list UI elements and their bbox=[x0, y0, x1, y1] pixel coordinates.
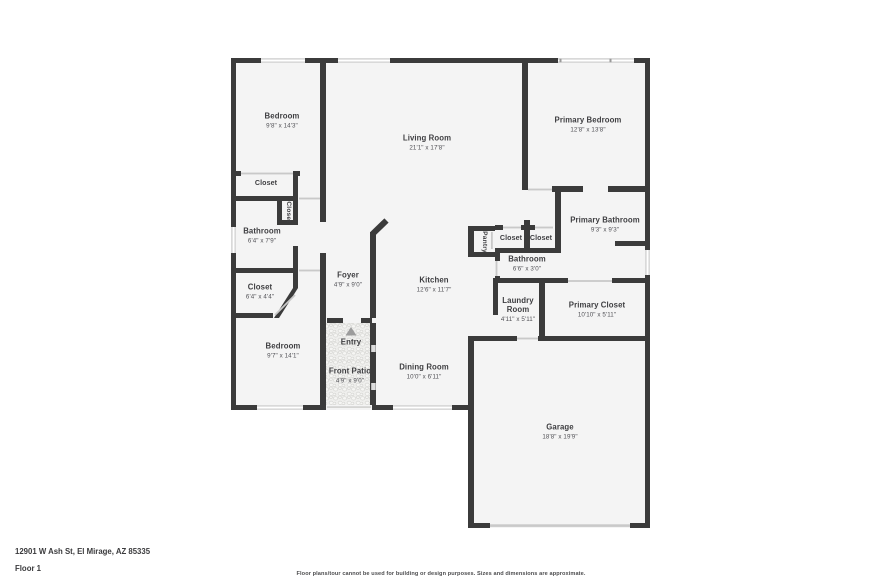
room-dims: 10'0" x 6'11" bbox=[399, 374, 449, 381]
room-name: Foyer bbox=[334, 271, 362, 280]
room-label-closet-b: Closet bbox=[530, 234, 552, 242]
room-dims: 12'6" x 11'7" bbox=[417, 287, 452, 294]
room-dims: 6'4" x 7'9" bbox=[243, 238, 281, 245]
room-label-bedroom-closet: Closet bbox=[255, 179, 277, 187]
floorplan-drawing bbox=[0, 0, 882, 588]
room-label-pantry: Pantry bbox=[480, 231, 488, 253]
room-dims: 12'8" x 13'8" bbox=[555, 127, 622, 134]
room-dims: 18'8" x 19'9" bbox=[542, 434, 577, 441]
room-label-garage: Garage 18'8" x 19'9" bbox=[542, 423, 577, 440]
room-label-laundry-room: Laundry Room 4'11" x 5'11" bbox=[492, 297, 544, 323]
room-label-primary-bedroom: Primary Bedroom 12'8" x 13'8" bbox=[555, 116, 622, 133]
room-label-living-room: Living Room 21'1" x 17'8" bbox=[403, 134, 451, 151]
room-name: Garage bbox=[542, 423, 577, 432]
room-name: Entry bbox=[341, 339, 361, 348]
room-name: Closet bbox=[246, 283, 274, 292]
room-label-bedroom-front: Bedroom 9'8" x 14'3" bbox=[265, 112, 300, 129]
room-dims: 6'4" x 4'4" bbox=[246, 294, 274, 301]
room-label-front-patio: Front Patio 4'9" x 9'0" bbox=[329, 367, 371, 384]
room-name: Kitchen bbox=[417, 276, 452, 285]
room-name: Closet bbox=[284, 201, 292, 222]
room-name: Closet bbox=[530, 234, 552, 242]
room-name: Bathroom bbox=[243, 227, 281, 236]
garage-door-line bbox=[490, 524, 630, 527]
room-name: Bedroom bbox=[265, 112, 300, 121]
room-dims: 9'7" x 14'1" bbox=[266, 353, 301, 360]
room-label-hall-closet: Closet 6'4" x 4'4" bbox=[246, 283, 274, 300]
room-dims: 4'11" x 5'11" bbox=[492, 316, 544, 323]
room-name: Bathroom bbox=[508, 255, 546, 264]
room-label-foyer: Foyer 4'9" x 9'0" bbox=[334, 271, 362, 288]
room-dims: 4'9" x 9'0" bbox=[329, 378, 371, 385]
room-label-dining-room: Dining Room 10'0" x 6'11" bbox=[399, 363, 449, 380]
room-label-side-closet: Closet bbox=[284, 201, 292, 222]
property-address: 12901 W Ash St, El Mirage, AZ 85335 bbox=[15, 547, 150, 556]
room-name: Primary Bedroom bbox=[555, 116, 622, 125]
room-name: Closet bbox=[255, 179, 277, 187]
room-name: Bedroom bbox=[266, 342, 301, 351]
room-name: Primary Bathroom bbox=[570, 216, 640, 225]
room-dims: 10'10" x 5'11" bbox=[569, 312, 625, 319]
room-name: Pantry bbox=[480, 231, 488, 253]
room-label-primary-closet: Primary Closet 10'10" x 5'11" bbox=[569, 301, 625, 318]
room-dims: 4'9" x 9'0" bbox=[334, 282, 362, 289]
disclaimer-text: Floor plans/tour cannot be used for buil… bbox=[0, 571, 882, 577]
room-dims: 9'3" x 9'3" bbox=[570, 227, 640, 234]
room-label-closet-a: Closet bbox=[500, 234, 522, 242]
room-label-kitchen: Kitchen 12'6" x 11'7" bbox=[417, 276, 452, 293]
room-dims: 21'1" x 17'8" bbox=[403, 145, 451, 152]
room-name: Living Room bbox=[403, 134, 451, 143]
room-dims: 6'6" x 3'0" bbox=[508, 266, 546, 273]
room-label-hall-bathroom: Bathroom 6'4" x 7'9" bbox=[243, 227, 281, 244]
room-name: Primary Closet bbox=[569, 301, 625, 310]
room-label-primary-bathroom: Primary Bathroom 9'3" x 9'3" bbox=[570, 216, 640, 233]
room-name: Closet bbox=[500, 234, 522, 242]
room-name: Dining Room bbox=[399, 363, 449, 372]
room-name: Front Patio bbox=[329, 367, 371, 376]
room-name: Laundry Room bbox=[492, 297, 544, 315]
floorplan-page: Bedroom 9'8" x 14'3" Living Room 21'1" x… bbox=[0, 0, 882, 588]
room-label-small-bathroom: Bathroom 6'6" x 3'0" bbox=[508, 255, 546, 272]
room-label-entry: Entry bbox=[341, 339, 361, 348]
room-label-bedroom-back: Bedroom 9'7" x 14'1" bbox=[266, 342, 301, 359]
room-dims: 9'8" x 14'3" bbox=[265, 123, 300, 130]
